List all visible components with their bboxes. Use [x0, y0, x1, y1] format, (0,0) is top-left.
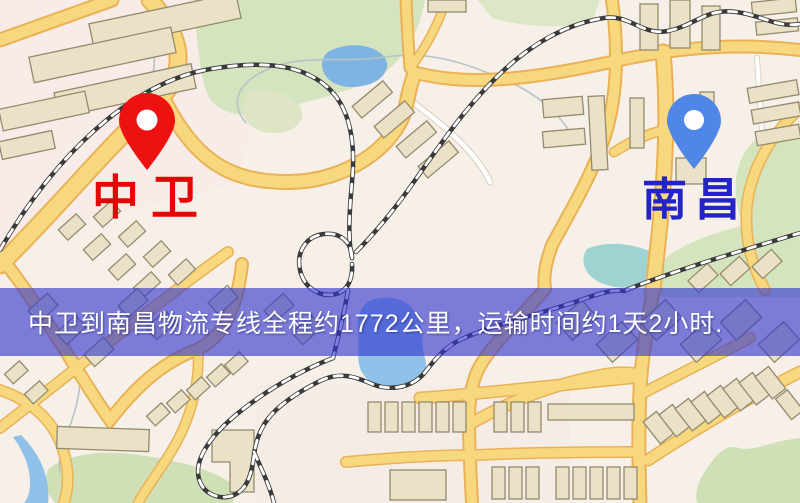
route-info-text: 中卫到南昌物流专线全程约1772公里，运输时间约1天2小时. [28, 304, 723, 340]
route-info-banner: 中卫到南昌物流专线全程约1772公里，运输时间约1天2小时. [0, 288, 800, 356]
origin-pin-hole [137, 110, 158, 131]
destination-pin[interactable] [667, 94, 721, 169]
map-canvas [0, 0, 800, 503]
map-viewport[interactable]: 中卫 南昌 中卫到南昌物流专线全程约1772公里，运输时间约1天2小时. [0, 0, 800, 503]
destination-pin-hole [684, 110, 704, 130]
origin-city-label: 中卫 [92, 176, 210, 223]
destination-pin-body[interactable] [667, 94, 721, 169]
destination-city-label: 南昌 [642, 178, 748, 223]
